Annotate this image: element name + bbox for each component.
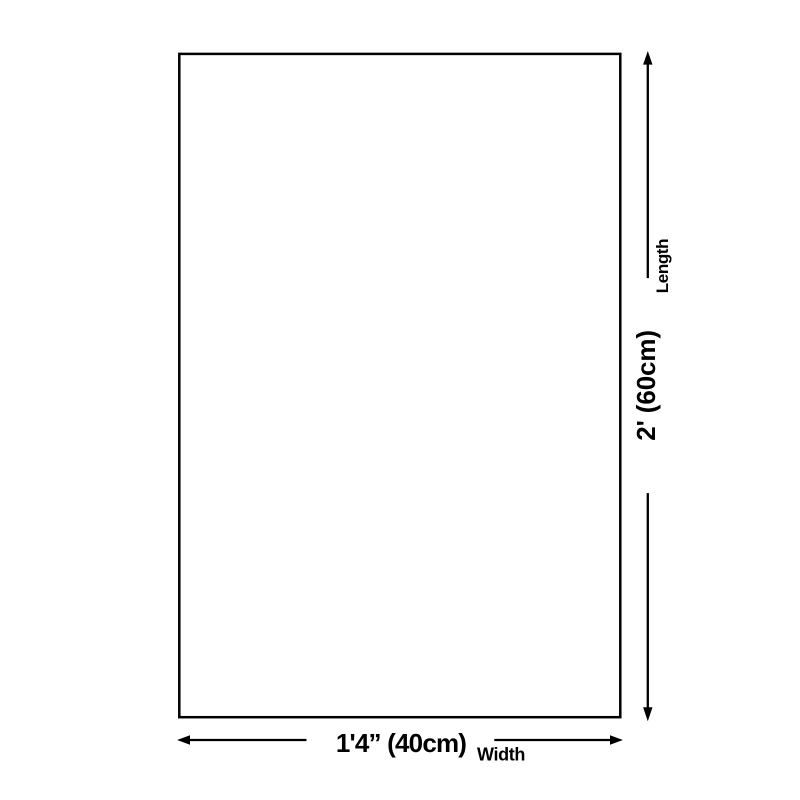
svg-text:Width: Width — [477, 745, 525, 765]
svg-text:2' (60cm): 2' (60cm) — [631, 330, 661, 441]
svg-text:1'4” (40cm): 1'4” (40cm) — [336, 728, 466, 758]
svg-text:Length: Length — [653, 239, 672, 293]
